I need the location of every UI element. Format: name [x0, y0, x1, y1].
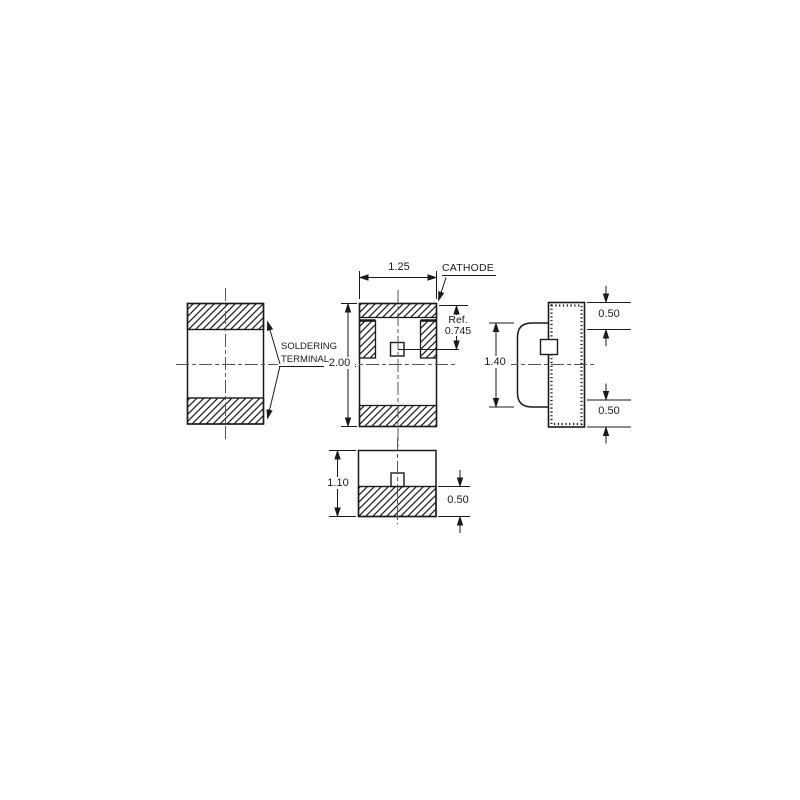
dimension-side-body-height: 1.40: [479, 356, 511, 368]
dimension-side-terminal-top: 0.50: [595, 308, 623, 320]
front-left-wall-hatch: [360, 321, 376, 358]
ref-value: 0.745: [445, 325, 471, 337]
view-front: [343, 290, 459, 446]
dimension-ref: Ref. 0.745: [439, 315, 477, 336]
dimension-front-width: 1.25: [383, 261, 415, 273]
technical-drawing: [0, 0, 800, 800]
soldering-terminal-label: SOLDERING TERMINAL: [281, 341, 337, 366]
leader-arrow-top-icon: [268, 322, 281, 365]
leader-arrow-bottom-icon: [268, 366, 281, 419]
dimension-bottom-view-terminal: 0.50: [444, 494, 472, 506]
soldering-terminal-line2: TERMINAL: [281, 354, 329, 365]
drawing-canvas: 1.25 CATHODE Ref. 0.745 2.00 SOLDERING T…: [0, 0, 800, 800]
soldering-terminal-leaders: [268, 322, 357, 419]
dimension-side-terminal-bottom: 0.50: [595, 405, 623, 417]
view-side: [505, 303, 597, 428]
cathode-leader-arrow-icon: [439, 278, 447, 301]
view-bottom: [359, 438, 437, 524]
front-right-wall-hatch: [421, 321, 437, 358]
view-back: [176, 288, 278, 439]
soldering-terminal-line1: SOLDERING: [281, 341, 337, 352]
cathode-label: CATHODE: [442, 262, 496, 276]
dimension-bottom-view-height: 1.10: [322, 477, 354, 489]
side-chip-notch: [541, 340, 558, 355]
